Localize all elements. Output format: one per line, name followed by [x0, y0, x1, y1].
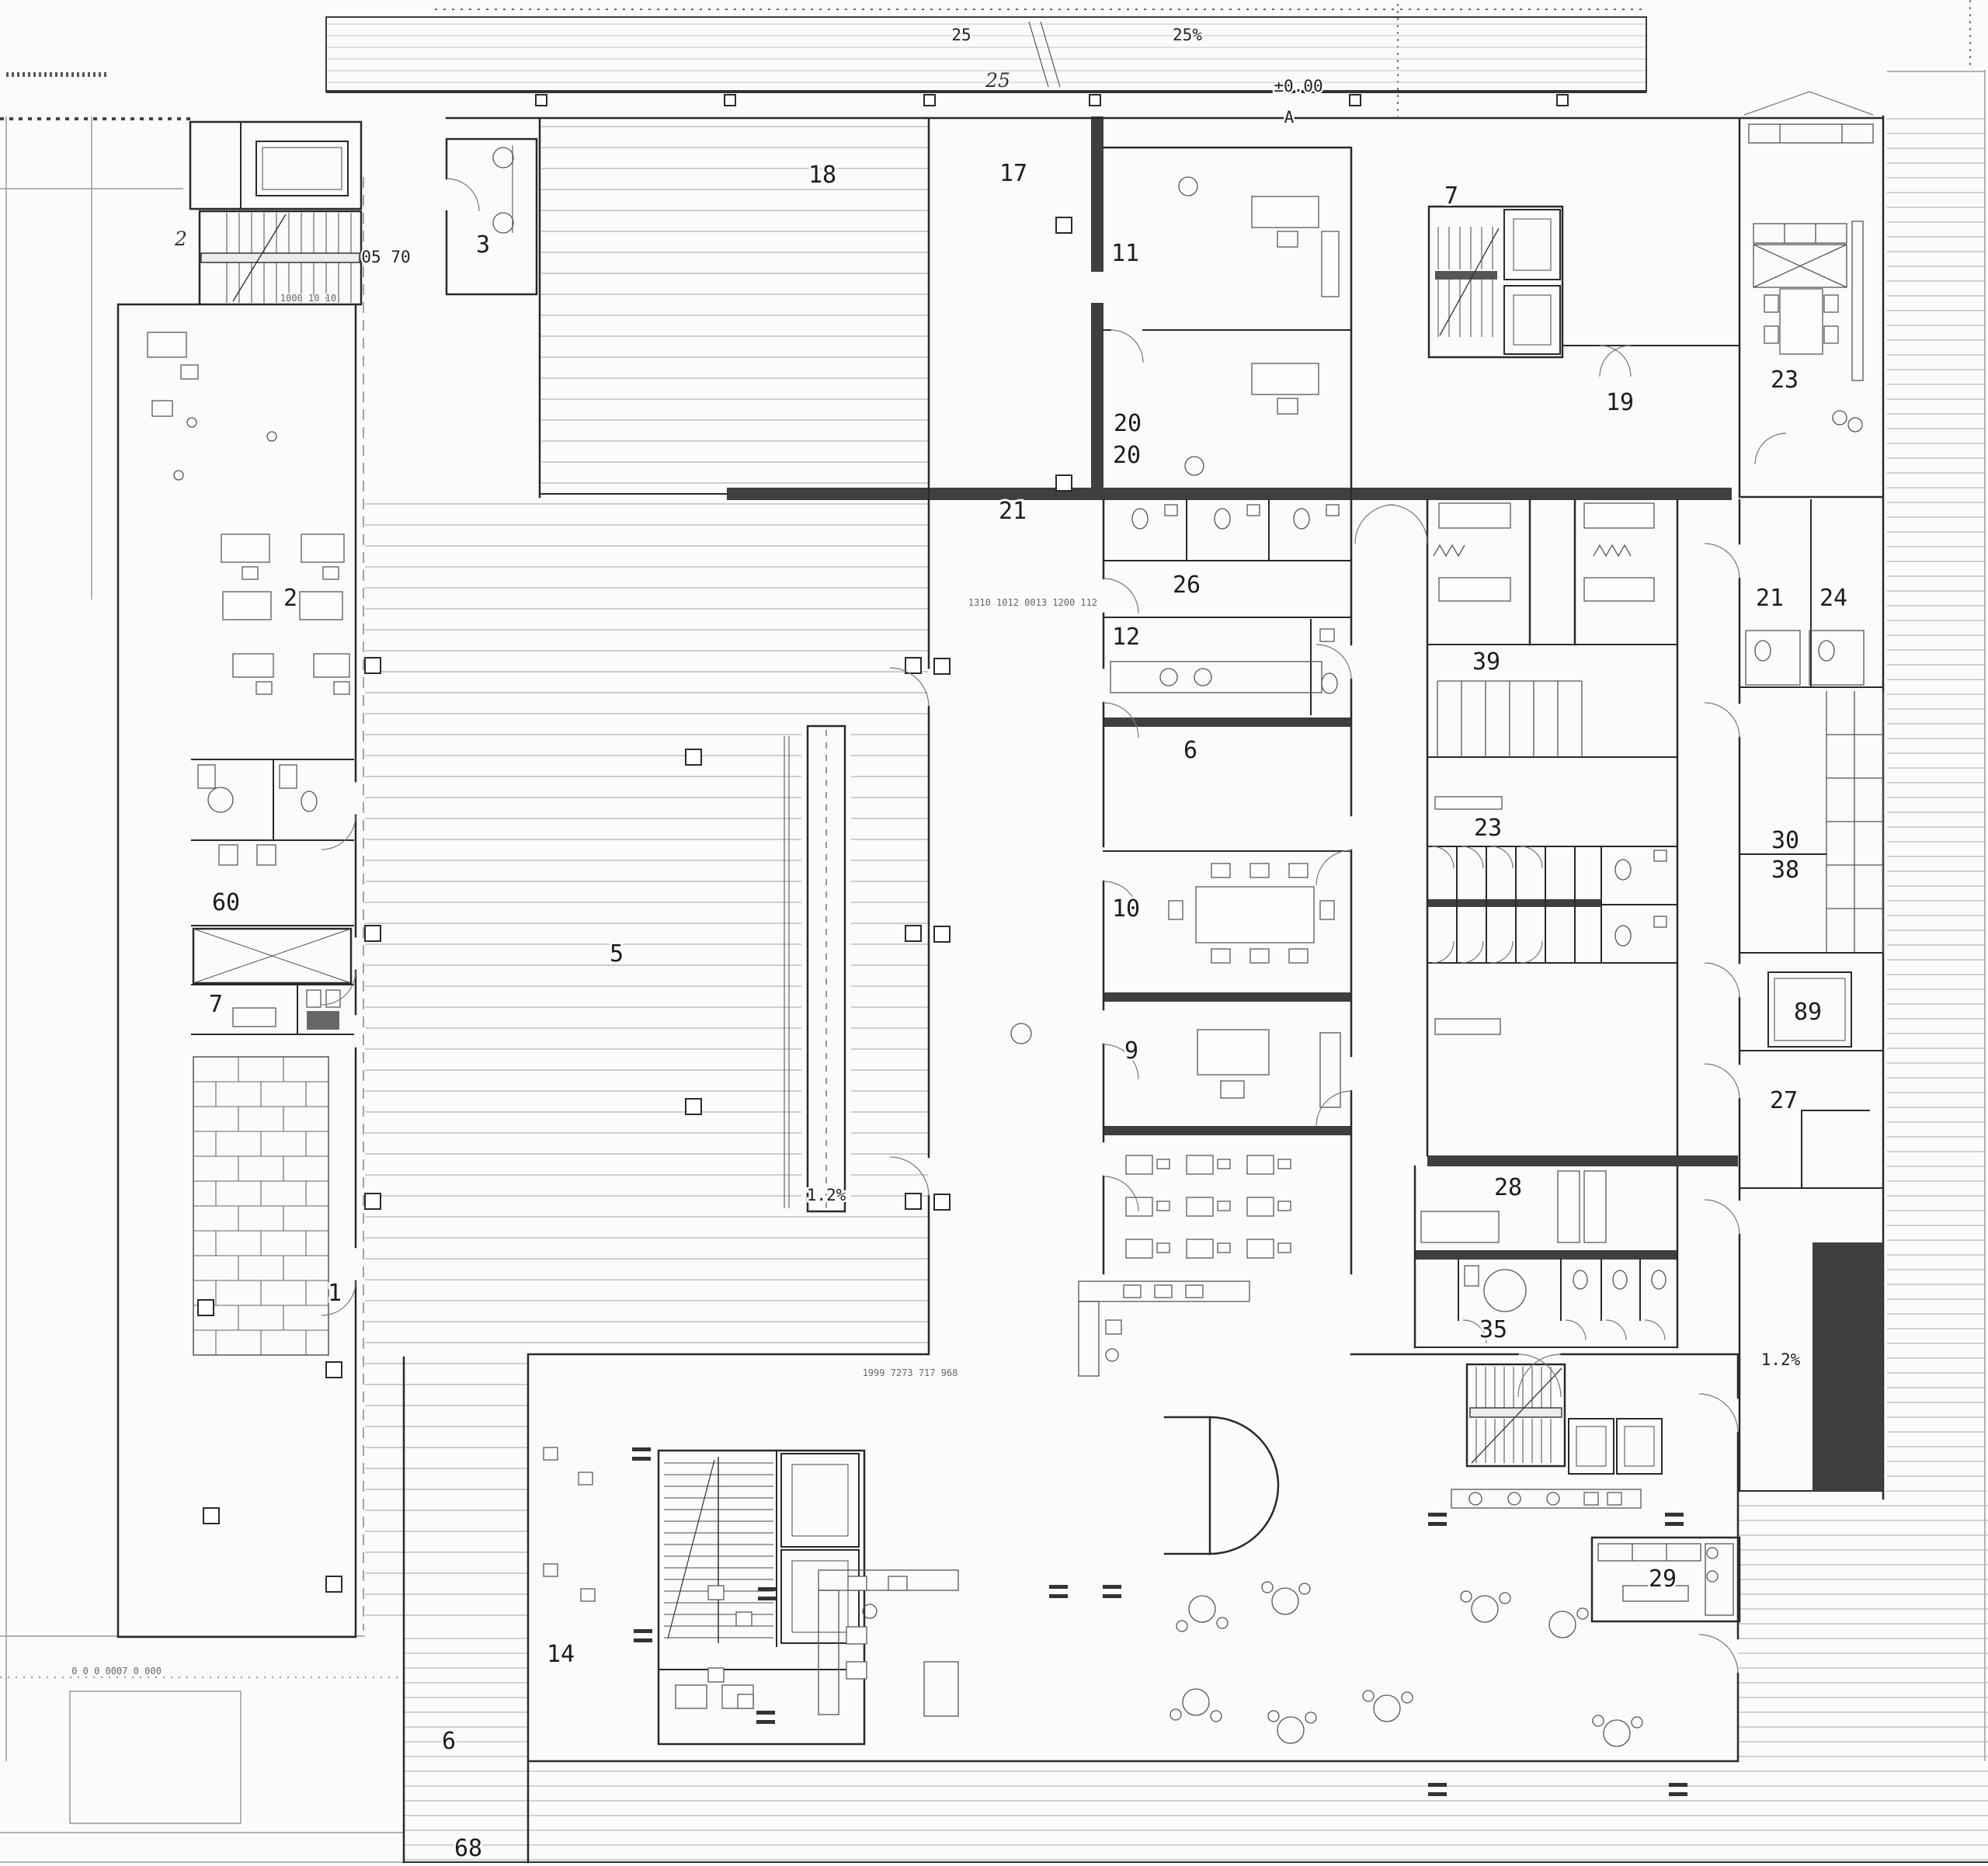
room-label-28: 28 — [1494, 1174, 1522, 1201]
room-label-9: 9 — [1124, 1037, 1138, 1065]
room-label-5: 5 — [610, 940, 624, 968]
label-68: 68 — [454, 1835, 482, 1862]
drawing-sheet: 25 25% 25 ±0.00 A 2 05 70 18 17 11 20 20… — [0, 0, 1988, 1866]
lobby-block — [190, 122, 361, 209]
hatch-entrance-hall-18 — [541, 120, 928, 488]
room-label-6s: 6 — [442, 1728, 456, 1755]
room-label-21r: 21 — [1756, 585, 1784, 612]
room-label-7w: 7 — [209, 991, 223, 1018]
room-label-14: 14 — [547, 1641, 575, 1668]
room-label-89: 89 — [1794, 999, 1822, 1026]
room-label-60: 60 — [212, 889, 240, 916]
room-label-18: 18 — [808, 162, 836, 189]
room-23-east — [1744, 92, 1873, 432]
room-label-39: 39 — [1472, 648, 1500, 676]
room-label-11: 11 — [1111, 240, 1139, 267]
hatch-deck-south — [528, 1767, 1988, 1862]
room-7-furniture — [233, 990, 340, 1030]
round-tables — [1170, 1582, 1642, 1746]
canopy-label-25: 25 — [951, 26, 971, 44]
room-label-35: 35 — [1479, 1316, 1507, 1343]
room-label-26: 26 — [1173, 572, 1201, 599]
room-label-30: 30 — [1771, 827, 1799, 854]
vestibule-semicircle — [1165, 1417, 1278, 1554]
dim-string-c: 1000 10 10 — [280, 293, 336, 304]
room-label-7e: 7 — [1444, 182, 1458, 210]
dim-0570: 05 70 — [361, 248, 410, 266]
wc-block-west — [198, 765, 317, 865]
room-label-29: 29 — [1649, 1565, 1677, 1593]
room-3 — [447, 139, 537, 294]
hatch-deck-southeast — [1738, 1491, 1988, 1761]
room-label-38: 38 — [1771, 857, 1799, 884]
pool-grid — [1812, 1242, 1883, 1491]
locker-changing-block — [1427, 681, 1677, 1034]
floor-plan-canvas: 25 25% 25 ±0.00 A 2 05 70 18 17 11 20 20… — [0, 0, 1988, 1866]
boundary-script-2: 2 — [174, 228, 187, 250]
dim-string-b: 1999 7273 717 968 — [863, 1367, 958, 1378]
hatch-areas — [365, 118, 1988, 1862]
servery-u-counter — [1079, 1281, 1249, 1376]
room-label-10: 10 — [1112, 895, 1140, 923]
office-2-furniture — [148, 332, 349, 694]
buffet-counter — [1451, 1489, 1641, 1508]
section-marker-a: A — [1284, 108, 1295, 127]
level-marker: ±0.00 — [1274, 77, 1322, 96]
grid-bubble — [1011, 1023, 1031, 1044]
room-label-1: 1 — [328, 1280, 342, 1307]
hatch-walkway-west — [404, 1634, 528, 1862]
bed-rooms — [1434, 503, 1654, 601]
room-label-27: 27 — [1770, 1087, 1798, 1114]
room-label-2: 2 — [283, 585, 297, 612]
room-label-17: 17 — [999, 160, 1027, 187]
room-label-3: 3 — [476, 231, 490, 259]
stair-elevators-south — [1467, 1364, 1662, 1474]
room-label-20b: 20 — [1113, 442, 1141, 469]
room-label-20a: 20 — [1114, 410, 1142, 437]
stair-elevators-north — [1429, 207, 1562, 357]
room-label-19: 19 — [1606, 389, 1634, 416]
room-label-12: 12 — [1112, 624, 1140, 651]
garden-planter — [70, 1691, 241, 1823]
dim-string-d: 0 0 0 0007 0 000 — [71, 1666, 162, 1677]
ne-offices — [1179, 177, 1339, 475]
room-label-24r: 24 — [1819, 585, 1847, 612]
slope-label-a: 1.2% — [807, 1186, 846, 1204]
elevator-west — [193, 929, 351, 983]
slope-label-b: 1.2% — [1761, 1350, 1801, 1369]
canopy-label-25pct: 25% — [1173, 26, 1202, 44]
hatch-hall-5-west-extension — [365, 1354, 528, 1634]
canopy-posts — [536, 95, 1568, 106]
dim-string-a: 1310 1012 0013 1200 112 — [968, 597, 1097, 608]
left-wing — [118, 122, 363, 1637]
site-boundary-lines — [0, 0, 1985, 1862]
stair-main-west — [200, 211, 361, 304]
porch-canopy — [1744, 92, 1873, 115]
open-office-desks — [1126, 1155, 1291, 1258]
canopy-script-25: 25 — [985, 69, 1010, 92]
room-label-23w: 23 — [1474, 815, 1502, 842]
room-label-23e: 23 — [1771, 367, 1799, 394]
corridor-label-21: 21 — [999, 498, 1027, 525]
room-label-6c: 6 — [1183, 737, 1197, 764]
